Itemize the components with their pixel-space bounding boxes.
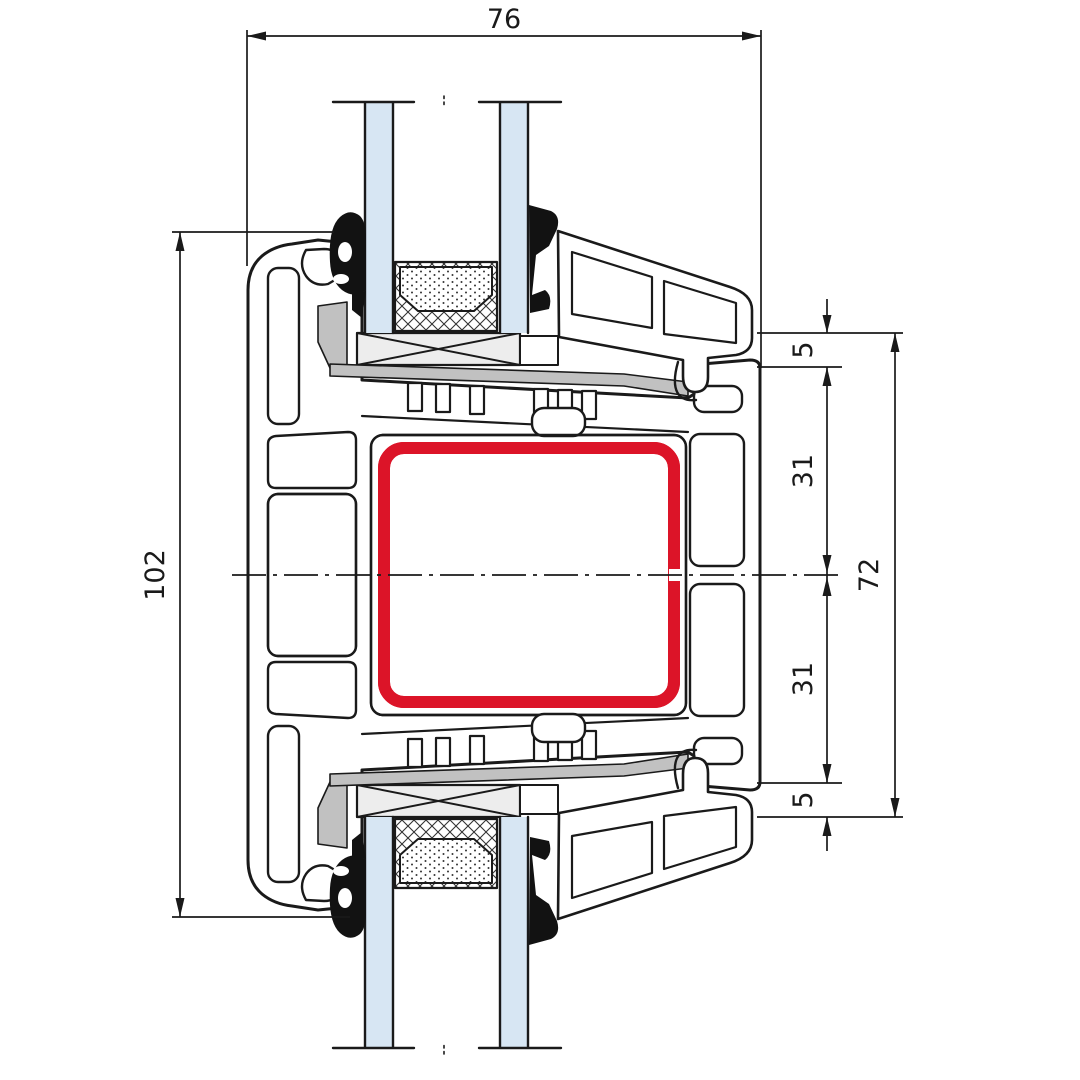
dim-label-5-top: 5: [788, 341, 819, 358]
dim-label-102: 102: [140, 549, 171, 601]
dim-label-5-bottom: 5: [788, 791, 819, 808]
dim-label-31-top: 31: [788, 454, 819, 488]
dim-label-72: 72: [854, 558, 885, 592]
dim-label-31-bottom: 31: [788, 662, 819, 696]
dim-label-76: 76: [487, 4, 521, 35]
profile-section-drawing: 76 102 5 31 31 5 72: [0, 0, 1080, 1080]
technical-drawing-page: 76 102 5 31 31 5 72: [0, 0, 1080, 1080]
